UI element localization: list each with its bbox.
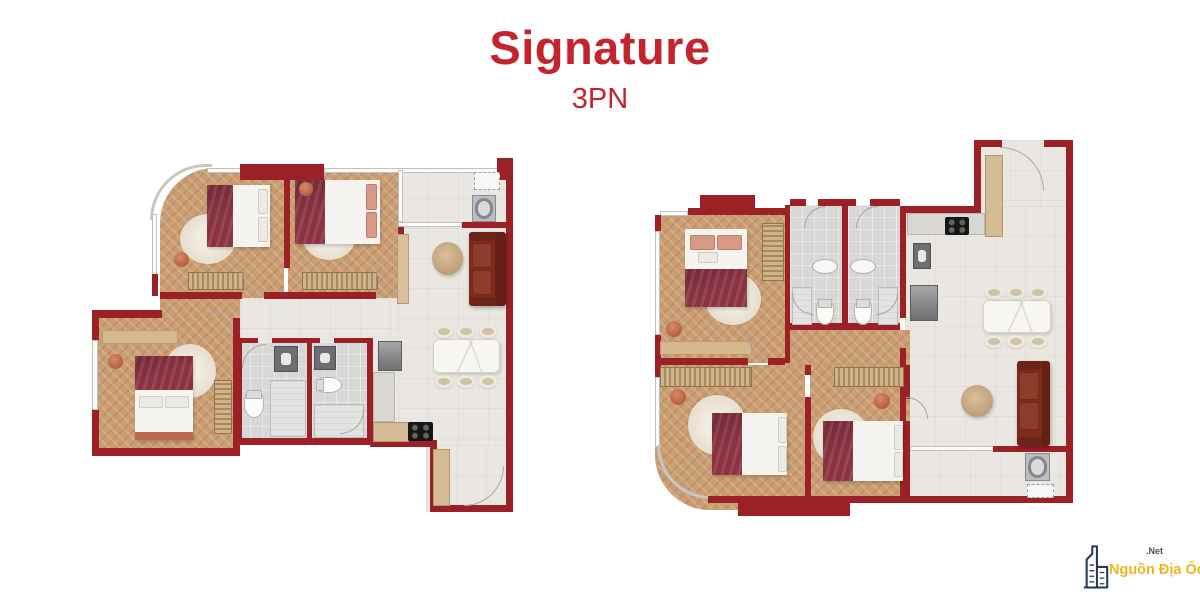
console-table bbox=[397, 234, 409, 304]
window bbox=[324, 168, 499, 173]
dining-chair bbox=[1007, 286, 1025, 299]
watermark: .Net Nguồn Địa Ốc bbox=[1082, 540, 1200, 596]
ac-unit bbox=[1027, 484, 1054, 498]
pillow bbox=[258, 189, 268, 214]
wall-segment bbox=[905, 206, 981, 213]
wardrobe bbox=[762, 223, 784, 281]
wall-segment bbox=[980, 140, 1002, 147]
bed-headboard bbox=[135, 432, 193, 440]
pillow bbox=[717, 235, 742, 250]
pillow bbox=[366, 184, 377, 210]
wall-segment bbox=[818, 199, 856, 206]
coffee-table bbox=[961, 385, 993, 417]
sofa-back bbox=[1042, 361, 1050, 446]
wardrobe bbox=[302, 272, 378, 290]
window bbox=[660, 211, 688, 216]
page: Signature 3PN .Net Nguồn Địa Ốc bbox=[0, 0, 1200, 600]
watermark-suffix: .Net bbox=[1146, 546, 1163, 556]
pillow bbox=[894, 425, 903, 450]
cooktop bbox=[408, 422, 433, 441]
pillow bbox=[139, 396, 163, 408]
terracotta-stool bbox=[299, 182, 313, 196]
page-subtitle: 3PN bbox=[0, 83, 1200, 116]
wall-segment bbox=[790, 199, 806, 206]
wall-segment bbox=[307, 342, 312, 440]
page-title: Signature bbox=[0, 20, 1200, 75]
window bbox=[398, 170, 403, 222]
wall-segment bbox=[462, 222, 513, 228]
wall-segment bbox=[240, 438, 370, 445]
terracotta-stool bbox=[874, 393, 890, 409]
wall-segment bbox=[506, 164, 513, 512]
wall-segment bbox=[993, 446, 1066, 452]
dining-chair bbox=[985, 286, 1003, 299]
pillow bbox=[778, 446, 787, 472]
window bbox=[92, 340, 98, 410]
dining-chair bbox=[435, 375, 453, 388]
terracotta-stool bbox=[666, 321, 682, 337]
refrigerator bbox=[910, 285, 938, 321]
floorplan-unit-b bbox=[648, 133, 1080, 528]
wall-segment bbox=[430, 505, 513, 512]
sofa-armrest bbox=[1017, 361, 1042, 370]
toilet bbox=[854, 299, 872, 325]
wall-segment bbox=[768, 358, 785, 365]
wall-segment bbox=[805, 397, 811, 503]
wall-segment bbox=[700, 195, 755, 215]
bed-blanket bbox=[712, 413, 742, 475]
pillow bbox=[698, 252, 718, 263]
coffee-table bbox=[432, 242, 463, 275]
pillow bbox=[366, 212, 377, 238]
wall-segment bbox=[974, 140, 981, 213]
wall-segment bbox=[240, 164, 324, 180]
bathroom-sink bbox=[274, 346, 298, 372]
bathroom-sink bbox=[913, 243, 931, 269]
sofa-cushion bbox=[472, 270, 492, 295]
bathroom-sink bbox=[812, 259, 838, 274]
wall-segment bbox=[238, 342, 242, 440]
window bbox=[910, 446, 995, 451]
pillow bbox=[258, 217, 268, 242]
wall-segment bbox=[1066, 140, 1073, 503]
bed-blanket bbox=[685, 269, 747, 307]
sofa-cushion bbox=[472, 243, 492, 268]
wall-segment bbox=[152, 274, 158, 296]
wall-segment bbox=[160, 292, 242, 299]
bathroom-sink bbox=[314, 346, 336, 370]
wall-segment bbox=[738, 496, 850, 516]
wall-segment bbox=[284, 180, 290, 268]
dining-chair bbox=[479, 325, 497, 338]
bed-blanket bbox=[135, 356, 193, 390]
wall-segment bbox=[92, 448, 240, 456]
bathroom-sink bbox=[850, 259, 876, 274]
window bbox=[655, 231, 660, 335]
dining-chair bbox=[1029, 286, 1047, 299]
dining-chair bbox=[435, 325, 453, 338]
shower-tray bbox=[270, 380, 306, 437]
wall-segment bbox=[92, 318, 99, 340]
curved-glass-wall bbox=[150, 164, 212, 220]
dining-chair bbox=[1007, 335, 1025, 348]
window bbox=[398, 222, 462, 227]
bed-blanket bbox=[207, 185, 233, 247]
wardrobe bbox=[188, 272, 244, 290]
toilet bbox=[316, 377, 342, 393]
sofa-armrest bbox=[469, 297, 496, 306]
wall-segment bbox=[903, 365, 910, 399]
sofa-armrest bbox=[1017, 437, 1042, 446]
corridor-floor bbox=[785, 330, 910, 365]
washing-machine bbox=[1025, 453, 1050, 481]
wall-segment bbox=[903, 421, 910, 503]
wall-segment bbox=[842, 205, 848, 330]
toilet bbox=[244, 390, 264, 418]
dining-chair bbox=[1029, 335, 1047, 348]
window bbox=[152, 214, 157, 278]
bed-blanket bbox=[823, 421, 853, 481]
watermark-brand: Nguồn Địa Ốc bbox=[1109, 562, 1200, 578]
dining-chair bbox=[479, 375, 497, 388]
pillow bbox=[778, 417, 787, 443]
pillow bbox=[894, 452, 903, 477]
wall-segment bbox=[272, 338, 320, 343]
desk bbox=[660, 341, 752, 355]
window bbox=[207, 168, 242, 173]
wardrobe bbox=[660, 367, 752, 387]
dining-table bbox=[433, 339, 500, 373]
sofa-cushion bbox=[1019, 402, 1039, 430]
sofa-armrest bbox=[469, 232, 496, 241]
wall-segment bbox=[785, 205, 790, 363]
wall-segment bbox=[805, 365, 811, 375]
wall-segment bbox=[655, 358, 748, 365]
ac-unit bbox=[474, 172, 500, 190]
kitchen-counter bbox=[433, 449, 450, 506]
header: Signature 3PN bbox=[0, 20, 1200, 116]
building-icon bbox=[1082, 542, 1110, 590]
sofa-back bbox=[495, 232, 506, 306]
terracotta-stool bbox=[108, 354, 123, 369]
dining-chair bbox=[457, 325, 475, 338]
pillow bbox=[690, 235, 715, 250]
dining-chair bbox=[457, 375, 475, 388]
desk bbox=[102, 330, 178, 344]
wall-segment bbox=[655, 215, 661, 231]
terracotta-stool bbox=[670, 389, 686, 405]
dining-table bbox=[983, 300, 1051, 333]
refrigerator bbox=[378, 341, 402, 371]
terracotta-stool bbox=[174, 252, 189, 267]
dining-chair bbox=[985, 335, 1003, 348]
floorplan-unit-a bbox=[92, 150, 522, 525]
wall-segment bbox=[870, 199, 900, 206]
kitchen-cabinet bbox=[373, 372, 395, 422]
window bbox=[655, 377, 660, 447]
wall-segment bbox=[92, 310, 162, 318]
wall-segment bbox=[900, 206, 906, 318]
cooktop bbox=[945, 217, 969, 235]
wardrobe bbox=[214, 380, 232, 434]
toilet bbox=[816, 299, 834, 325]
sofa-cushion bbox=[1019, 372, 1039, 400]
wardrobe bbox=[834, 367, 904, 387]
wall-segment bbox=[264, 292, 376, 299]
kitchen-counter bbox=[373, 422, 409, 442]
washing-machine bbox=[472, 195, 496, 222]
pillow bbox=[165, 396, 189, 408]
